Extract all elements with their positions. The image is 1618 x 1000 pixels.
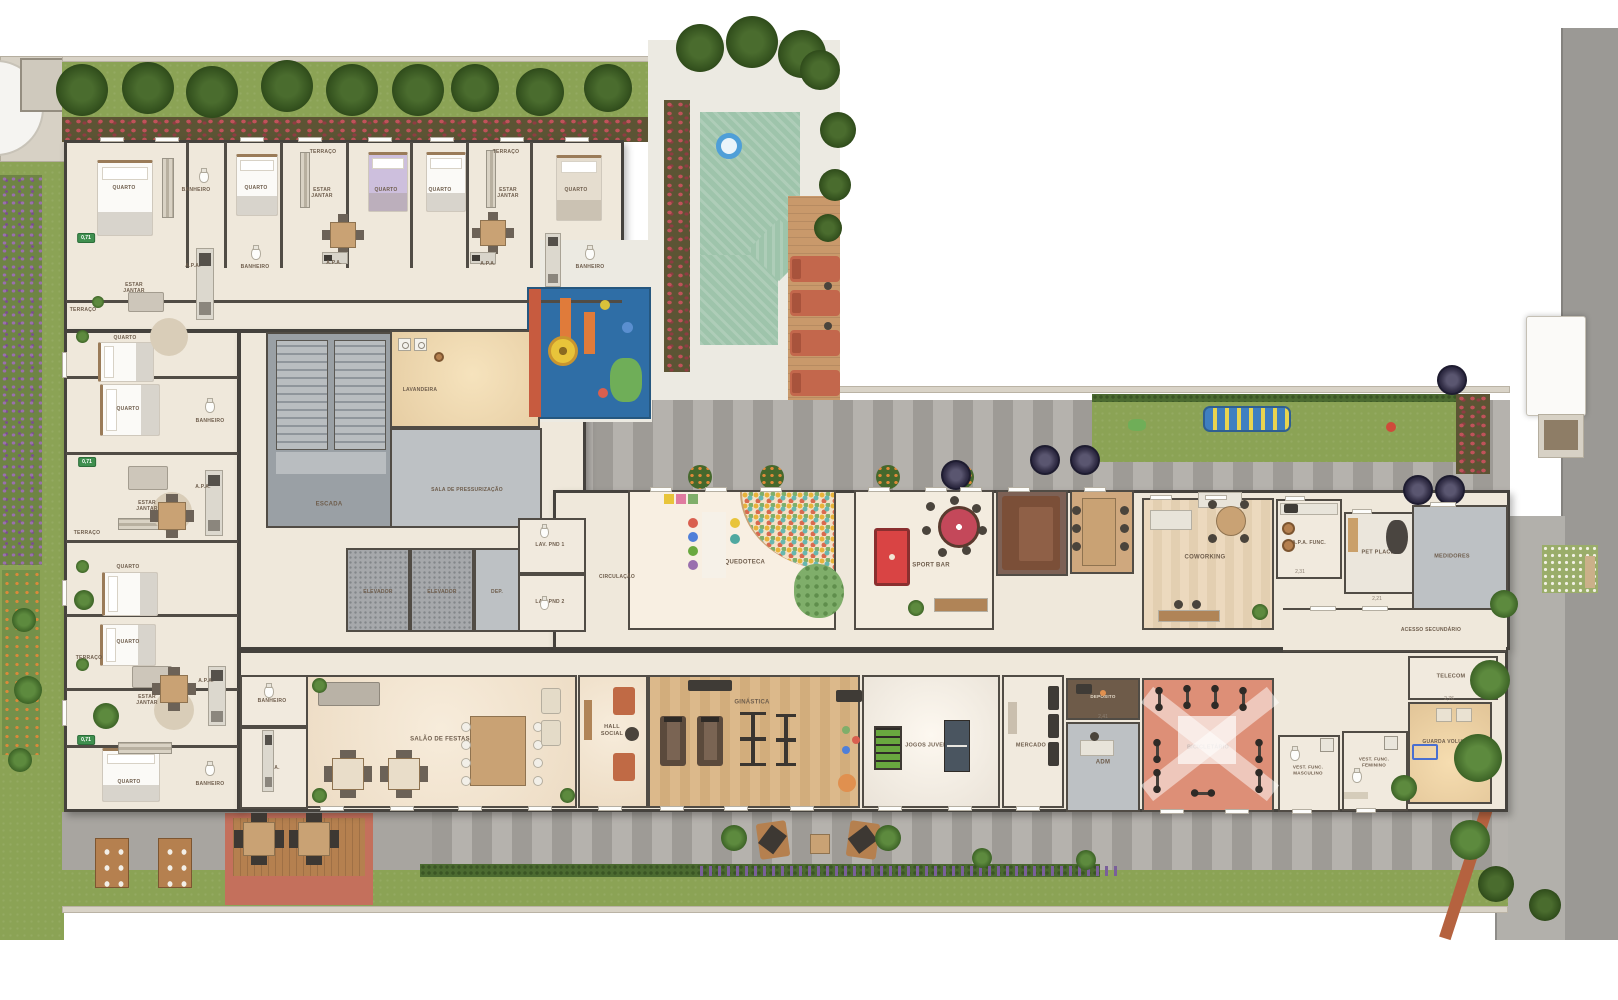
bush-icon-34 (93, 703, 119, 729)
dotw-113 (533, 776, 543, 786)
bush-icon-30 (721, 825, 747, 851)
solid-122 (584, 700, 592, 740)
dotc-160 (600, 300, 610, 310)
plant-180 (92, 296, 104, 308)
shq-100 (1384, 736, 1398, 750)
bed-5 (368, 152, 408, 212)
bush-icon-35 (74, 590, 94, 610)
planter-pot-icon-1 (1030, 445, 1060, 475)
dotc-55 (730, 518, 740, 528)
bed-3 (97, 160, 153, 236)
bush-icon-26 (12, 608, 36, 632)
sofaU-71 (1002, 496, 1060, 570)
tree-icon-9 (676, 24, 724, 72)
bush-icon-33 (1076, 850, 1096, 870)
bottom-wall (62, 906, 1508, 913)
dotd-75 (1072, 542, 1081, 551)
wc-41 (1290, 748, 1300, 761)
deckT-170 (95, 838, 129, 888)
window-5 (430, 137, 454, 142)
bush-icon-23 (1450, 820, 1490, 860)
tree-icon-3 (261, 60, 313, 112)
right-wall-line (838, 386, 1510, 393)
window-7 (565, 137, 589, 142)
dotc-131 (842, 746, 850, 754)
solid-101 (1344, 792, 1368, 799)
lounger-165 (790, 290, 840, 316)
window-18 (1285, 496, 1305, 501)
gymst-126 (776, 714, 796, 766)
bush-icon-21 (1470, 660, 1510, 700)
wall-segment-2 (280, 142, 283, 268)
window-29 (878, 806, 902, 811)
bed-12 (100, 624, 156, 666)
window-2 (240, 137, 264, 142)
window-37 (1362, 606, 1388, 611)
bike-149 (1236, 686, 1250, 712)
bed-9 (98, 342, 154, 382)
armchO-120 (613, 753, 635, 781)
pingpong-134 (944, 720, 970, 772)
kcounter-33 (262, 730, 274, 792)
ward-14 (486, 150, 496, 208)
pet-tunnel (1203, 406, 1291, 432)
wash-46 (414, 338, 427, 351)
lounger-167 (790, 370, 840, 396)
foos-133 (874, 726, 902, 770)
window-13 (960, 487, 982, 492)
window-34 (1292, 809, 1312, 814)
armchC-114 (541, 688, 561, 714)
wash-45 (398, 338, 411, 351)
window-0 (100, 137, 124, 142)
sofa-102 (318, 682, 380, 706)
room-elevador-2 (410, 548, 474, 632)
dotw-108 (461, 758, 471, 768)
dotd-121 (625, 727, 639, 741)
kcounter-31 (205, 470, 223, 536)
window-6 (500, 137, 524, 142)
street (1561, 28, 1618, 940)
window-20 (1430, 502, 1456, 507)
window-36 (1310, 606, 1336, 611)
barrel-93 (1282, 539, 1295, 552)
petbed-94 (1386, 520, 1408, 554)
wc-38 (205, 400, 215, 413)
window-39 (62, 580, 67, 606)
tree-icon-6 (451, 64, 499, 112)
dotc-132 (838, 774, 856, 792)
bed-8 (102, 748, 160, 802)
tree-icon-25 (1529, 889, 1561, 921)
pgreen-159 (610, 358, 642, 402)
solid-138 (1008, 702, 1017, 734)
dotc-52 (688, 532, 698, 542)
window-26 (660, 806, 684, 811)
dotd-64 (978, 526, 987, 535)
solid-95 (1348, 518, 1358, 552)
pooltab-60 (874, 528, 910, 586)
tree-icon-10 (726, 16, 778, 68)
wc-44 (540, 598, 549, 610)
window-10 (760, 487, 782, 492)
window-19 (1352, 509, 1372, 514)
wc-35 (199, 170, 209, 183)
tread-124 (697, 716, 723, 766)
floorplan-canvas: ESCADALAVANDEIRASALA DE PRESSURIZAÇÃOELE… (0, 0, 1618, 1000)
plant-177 (76, 330, 89, 343)
dotw-112 (533, 758, 543, 768)
counter-69 (934, 598, 988, 612)
tree-icon-8 (584, 64, 632, 112)
window-3 (298, 137, 322, 142)
counter-86 (1158, 610, 1220, 622)
plant-178 (76, 560, 89, 573)
ring-163 (716, 133, 742, 159)
ward-15 (300, 152, 310, 208)
solid-57 (664, 494, 674, 504)
dotc-161 (622, 322, 633, 333)
window-23 (458, 806, 482, 811)
dotc-53 (688, 546, 698, 556)
wc-39 (205, 763, 215, 776)
room-banheiro-festas (240, 675, 308, 727)
dotd-76 (1120, 506, 1129, 515)
bike-152 (1252, 738, 1266, 764)
blk-127 (836, 690, 862, 702)
tree-icon-13 (820, 112, 856, 148)
wall-segment-9 (66, 452, 238, 455)
window-14 (1008, 487, 1030, 492)
dotd-73 (1072, 506, 1081, 515)
tree-icon-4 (326, 64, 378, 116)
bush-icon-31 (875, 825, 901, 851)
window-4 (368, 137, 392, 142)
solid-155 (529, 289, 541, 417)
wc-43 (540, 526, 549, 538)
window-11 (868, 487, 890, 492)
orange-flowerbed (2, 570, 40, 755)
solid-2 (276, 452, 386, 474)
tree-icon-0 (56, 64, 108, 116)
tread-123 (660, 716, 686, 766)
lounger-166 (790, 330, 840, 356)
window-40 (62, 700, 67, 726)
blk-139 (1076, 684, 1092, 694)
deckT-171 (158, 838, 192, 888)
tableW-105 (470, 716, 526, 786)
dotd-82 (1208, 500, 1217, 509)
kstrip-29 (470, 252, 496, 264)
lavender-row (700, 866, 1120, 876)
wall-segment-10 (66, 540, 238, 543)
sq4-173 (298, 822, 330, 856)
dotd-83 (1240, 500, 1249, 509)
bed-10 (100, 384, 160, 436)
plant-117 (312, 788, 327, 803)
sofaL-18 (128, 292, 164, 312)
gymst-125 (740, 712, 766, 766)
planter-pot-icon-2 (1070, 445, 1100, 475)
tableW-176 (810, 834, 830, 854)
bush-icon-27 (14, 676, 42, 704)
plant-89 (1252, 604, 1268, 620)
room-acesso-secundario (1283, 608, 1506, 652)
treeO-icon-18 (876, 465, 900, 489)
bush-icon-20 (1490, 590, 1518, 618)
bike-154 (1190, 786, 1216, 800)
pet-hedge (1092, 394, 1456, 402)
rugTree-49 (794, 564, 844, 618)
wardh-17 (118, 742, 172, 754)
stairs-1 (334, 340, 386, 450)
dotd-66 (938, 548, 947, 557)
wall-segment-6 (530, 142, 533, 268)
plant-116 (312, 678, 327, 693)
wc-36 (251, 247, 261, 260)
armchO-119 (613, 687, 635, 715)
room-lav-pnd-1 (518, 518, 586, 574)
dotd-78 (1120, 542, 1129, 551)
tree-icon-7 (516, 68, 564, 116)
window-12 (925, 487, 947, 492)
shq-99 (1320, 738, 1334, 752)
dotd-85 (1240, 534, 1249, 543)
dotd-168 (824, 282, 832, 290)
wchair-174 (756, 820, 791, 860)
sq4-104 (388, 758, 420, 790)
tree-icon-14 (819, 169, 851, 201)
window-27 (724, 806, 748, 811)
bush-icon-28 (8, 748, 32, 772)
right-red-hedge (1456, 394, 1490, 474)
bike-151 (1150, 768, 1164, 794)
tree-icon-15 (814, 214, 842, 242)
window-16 (1150, 495, 1172, 500)
plant-179 (76, 658, 89, 671)
dotc-129 (842, 726, 850, 734)
bench (1585, 556, 1595, 588)
wall-segment-4 (410, 142, 413, 268)
window-9 (705, 487, 727, 492)
tree-icon-5 (392, 64, 444, 116)
room-dep (474, 548, 520, 632)
tree-icon-12 (800, 50, 840, 90)
window-33 (1225, 809, 1249, 814)
ward-13 (162, 158, 174, 218)
stove-91 (1284, 504, 1298, 513)
dotc-181 (1386, 422, 1396, 432)
dotw-106 (461, 722, 471, 732)
bottom-stripes (432, 812, 1508, 870)
bike-148 (1208, 684, 1222, 710)
planter-pot-icon-4 (1435, 475, 1465, 505)
kstrip-28 (322, 252, 348, 264)
sq4-172 (243, 822, 275, 856)
dotd-67 (922, 526, 931, 535)
sq4-27 (160, 675, 188, 703)
wc-42 (1352, 770, 1362, 783)
barrel-47 (434, 352, 444, 362)
wall-segment-3 (346, 142, 349, 268)
sq4-25 (480, 220, 506, 246)
wall-segment-0 (186, 142, 189, 268)
dotd-87 (1174, 600, 1183, 609)
wall-segment-5 (466, 142, 469, 268)
window-32 (1160, 809, 1184, 814)
dotd-74 (1072, 524, 1081, 533)
stairs-0 (276, 340, 328, 450)
box-97 (1456, 708, 1472, 722)
tableW-72 (1082, 498, 1116, 566)
kcounter-34 (545, 233, 561, 287)
bike-153 (1252, 768, 1266, 794)
window-21 (320, 806, 344, 811)
bed-11 (102, 572, 158, 616)
dotd-63 (972, 504, 981, 513)
blk-135 (1048, 686, 1059, 710)
bed-4 (236, 154, 278, 216)
dotc-51 (688, 518, 698, 528)
blk-137 (1048, 742, 1059, 766)
room-lavandeira (390, 330, 540, 428)
pgreen-182 (1128, 419, 1146, 431)
bed-7 (556, 155, 602, 221)
treeO-icon-16 (688, 465, 712, 489)
room-lav-pnd-2 (518, 574, 586, 632)
pool-hedge (664, 100, 690, 372)
bike-150 (1150, 738, 1164, 764)
dotc-162 (598, 388, 608, 398)
dotc-130 (852, 736, 860, 744)
dotd-68 (926, 502, 935, 511)
counter-141 (1080, 740, 1114, 756)
bush-icon-29 (1391, 775, 1417, 801)
solid-157 (584, 312, 595, 354)
rug-21 (150, 318, 188, 356)
dotd-77 (1120, 524, 1129, 533)
plant-118 (560, 788, 575, 803)
room-elevador-1 (346, 548, 410, 632)
planter-pot-icon-3 (1403, 475, 1433, 505)
planter-pot-icon-0 (941, 460, 971, 490)
wc-40 (264, 685, 274, 698)
dotc-140 (1100, 690, 1106, 696)
dotw-107 (461, 740, 471, 750)
dotd-84 (1208, 534, 1217, 543)
window-24 (528, 806, 552, 811)
solid-59 (688, 494, 698, 504)
window-1 (155, 137, 179, 142)
lounger-164 (790, 256, 840, 282)
planter-pot-icon-5 (1437, 365, 1467, 395)
tree-icon-24 (1478, 866, 1514, 902)
solid-58 (676, 494, 686, 504)
purple-flowerbed (0, 175, 42, 565)
bush-icon-22 (1454, 734, 1502, 782)
pgsun-158 (548, 336, 578, 366)
sofaL-19 (128, 466, 168, 490)
window-8 (650, 487, 672, 492)
sq4-26 (158, 502, 186, 530)
dotd-142 (1090, 732, 1099, 741)
counter-79 (1150, 510, 1192, 530)
window-17 (1205, 495, 1227, 500)
treeO-icon-17 (760, 465, 784, 489)
dotc-54 (688, 560, 698, 570)
armchC-115 (541, 720, 561, 746)
solid-50 (702, 512, 726, 578)
dotc-56 (730, 534, 740, 544)
bike-147 (1180, 684, 1194, 710)
dotw-109 (461, 776, 471, 786)
plant-70 (908, 600, 924, 616)
entry-canopy (1526, 316, 1586, 416)
locker-98 (1412, 744, 1438, 760)
dotd-169 (824, 322, 832, 330)
tableR-81 (1216, 506, 1246, 536)
dotd-65 (962, 546, 971, 555)
dotd-88 (1192, 600, 1201, 609)
window-28 (790, 806, 814, 811)
sq4-24 (330, 222, 356, 248)
bush-icon-32 (972, 848, 992, 868)
blk-136 (1048, 714, 1059, 738)
box-96 (1436, 708, 1452, 722)
window-22 (390, 806, 414, 811)
dotd-62 (950, 496, 959, 505)
barrel-92 (1282, 522, 1295, 535)
room-sala-pressurizacao (390, 428, 542, 528)
room-apa-festas (240, 727, 308, 809)
bed-6 (426, 152, 466, 212)
window-38 (62, 352, 67, 378)
sq4-103 (332, 758, 364, 790)
window-35 (1356, 808, 1376, 813)
window-30 (948, 806, 972, 811)
blk-128 (688, 680, 732, 691)
window-15 (1084, 487, 1106, 492)
wall-segment-1 (224, 142, 227, 268)
kcounter-30 (196, 248, 214, 320)
window-25 (598, 806, 622, 811)
tree-icon-1 (122, 62, 174, 114)
wc-37 (585, 247, 595, 260)
kcounter-32 (208, 666, 226, 726)
bike-146 (1152, 686, 1166, 712)
room-adm (1066, 722, 1140, 812)
tree-icon-2 (186, 66, 238, 118)
window-31 (1016, 806, 1040, 811)
entry-inner (1544, 420, 1578, 450)
